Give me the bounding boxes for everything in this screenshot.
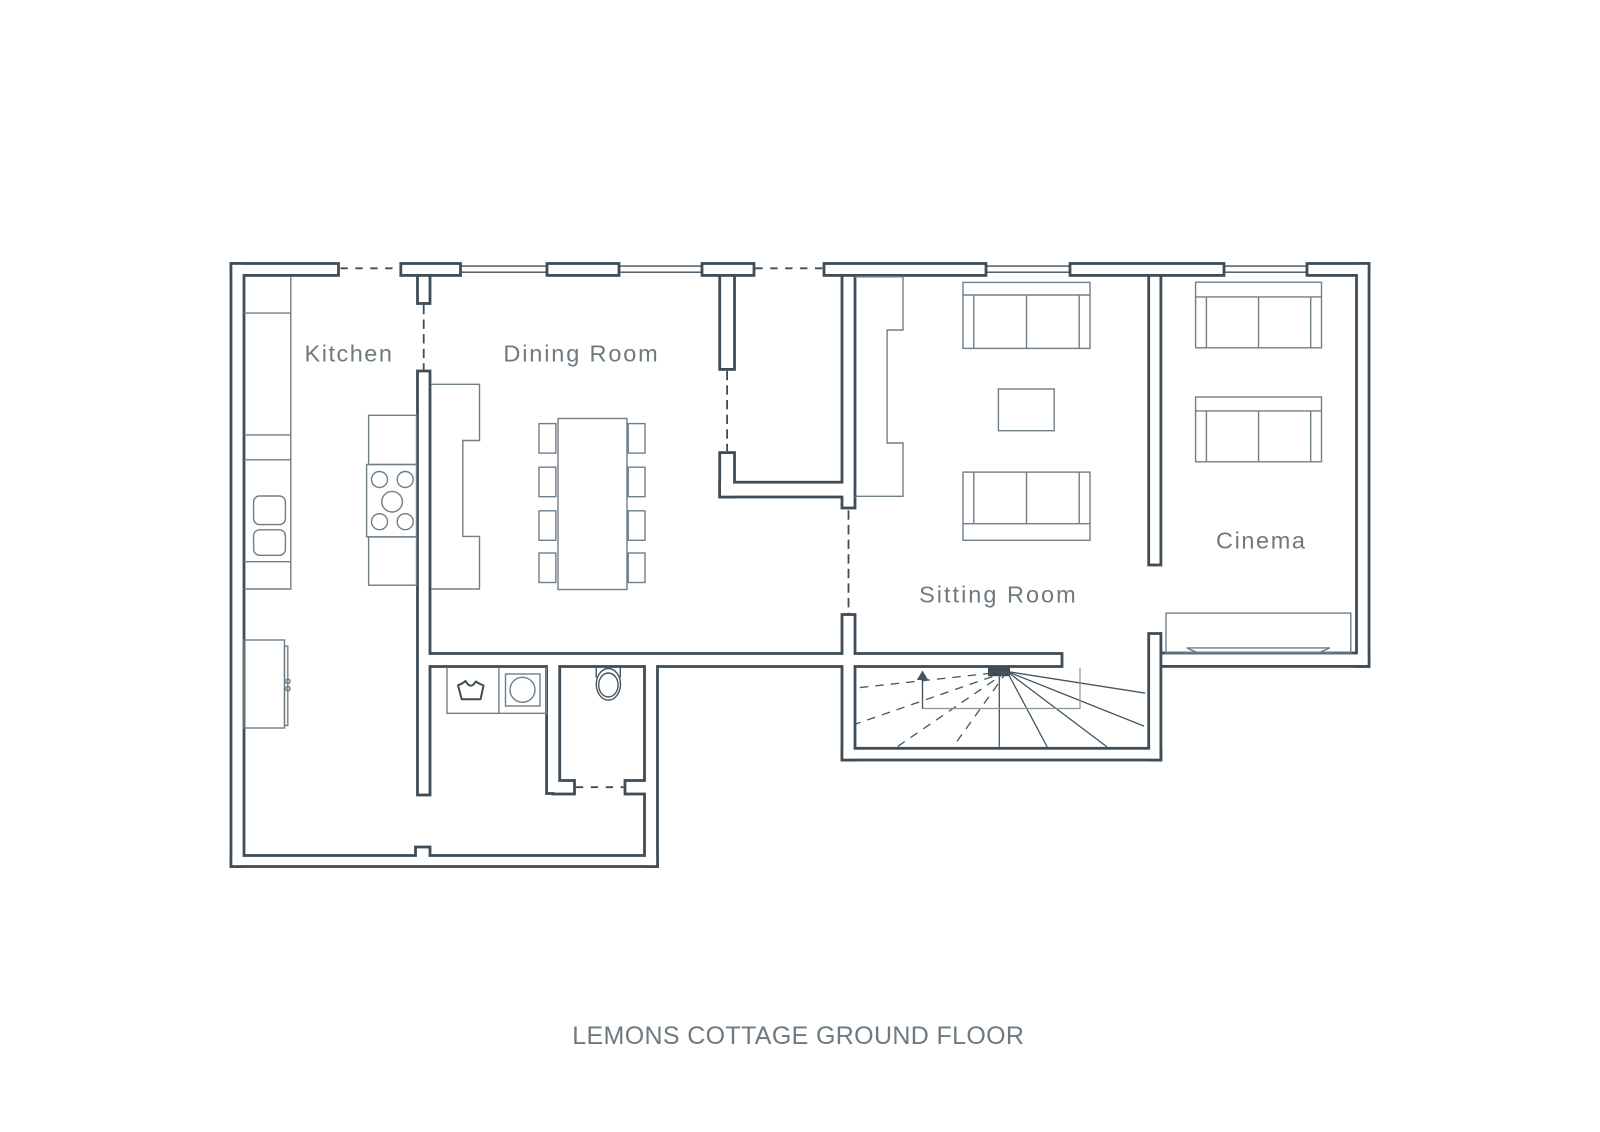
- svg-text:Cinema: Cinema: [1216, 528, 1307, 554]
- svg-text:Dining Room: Dining Room: [503, 341, 659, 367]
- svg-text:Kitchen: Kitchen: [305, 341, 394, 367]
- svg-text:Sitting Room: Sitting Room: [919, 582, 1078, 608]
- svg-text:LEMONS COTTAGE GROUND FLOOR: LEMONS COTTAGE GROUND FLOOR: [572, 1022, 1024, 1050]
